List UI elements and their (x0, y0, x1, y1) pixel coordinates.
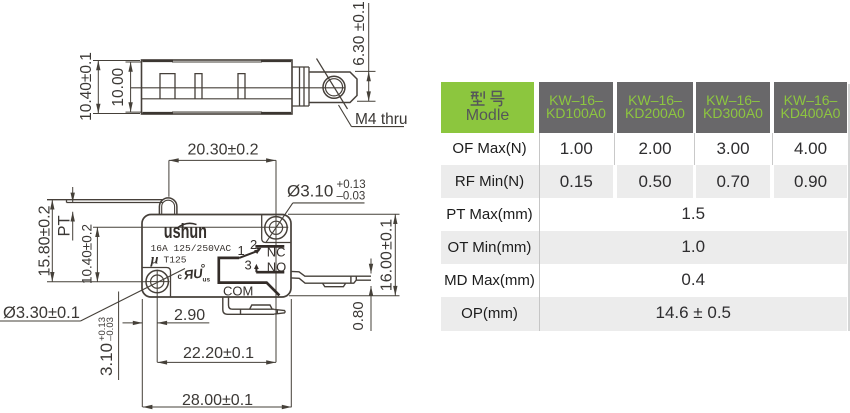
svg-text:0.80: 0.80 (350, 301, 367, 330)
svg-text:NC: NC (267, 245, 286, 260)
svg-text:Ø3.30±0.1: Ø3.30±0.1 (3, 304, 80, 322)
svg-text:16.00 ±0.1: 16.00 ±0.1 (379, 219, 396, 292)
svg-text:M4 thru: M4 thru (355, 111, 408, 128)
svg-text:2: 2 (250, 237, 257, 252)
svg-text:20.30±0.2: 20.30±0.2 (187, 142, 258, 159)
svg-text:16A 125/250VAC: 16A 125/250VAC (151, 243, 232, 254)
svg-text:3: 3 (245, 258, 252, 273)
svg-text:Ø3.10: Ø3.10 (287, 182, 333, 201)
svg-text:ЯU: ЯU (182, 266, 204, 283)
svg-text:NO: NO (267, 260, 287, 275)
svg-text:c: c (178, 272, 183, 281)
svg-text:22.20±0.1: 22.20±0.1 (183, 345, 254, 362)
svg-text:1: 1 (238, 243, 245, 258)
svg-text:10.00: 10.00 (110, 67, 127, 106)
svg-text:µ: µ (150, 253, 159, 268)
svg-text:3.10: 3.10 (97, 343, 116, 376)
svg-text:10.40±0.1: 10.40±0.1 (78, 52, 95, 121)
svg-text:10.40±0.2: 10.40±0.2 (80, 224, 95, 284)
svg-text:COM: COM (223, 283, 253, 298)
svg-text:PT: PT (56, 215, 74, 236)
svg-text:–0.03: –0.03 (337, 191, 366, 203)
svg-text:28.00±0.1: 28.00±0.1 (182, 392, 253, 409)
svg-text:us: us (203, 277, 211, 284)
svg-text:2.90: 2.90 (174, 307, 205, 324)
svg-text:+0.13: +0.13 (337, 179, 366, 191)
svg-text:–0.03: –0.03 (105, 317, 116, 341)
svg-text:T125: T125 (164, 255, 187, 266)
svg-text:ushun: ushun (164, 219, 207, 242)
svg-text:6.30 ±0.1: 6.30 ±0.1 (351, 1, 368, 66)
svg-text:15.80±0.2: 15.80±0.2 (37, 205, 54, 276)
